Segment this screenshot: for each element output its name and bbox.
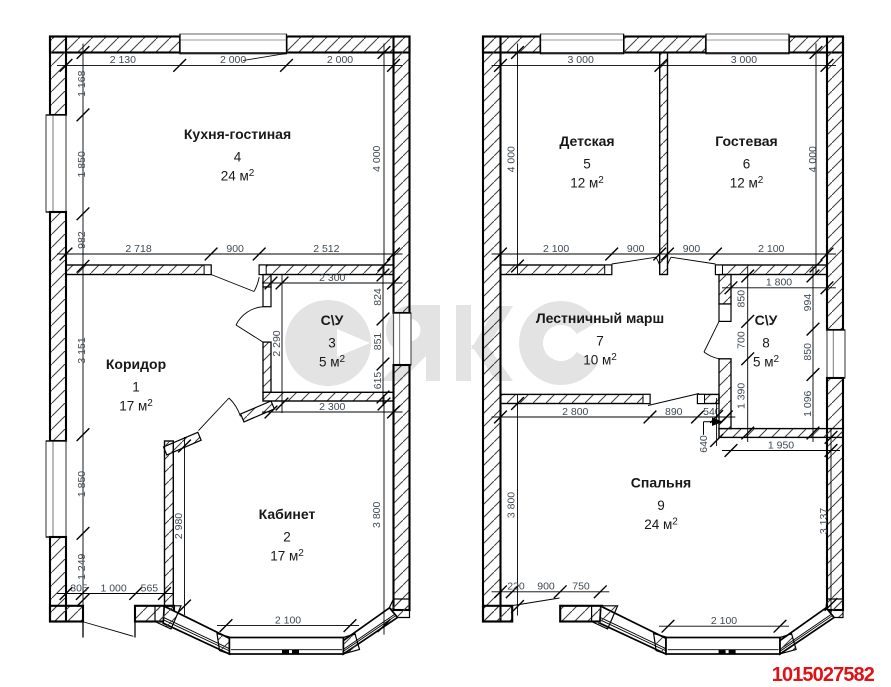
svg-text:824: 824 xyxy=(372,288,384,306)
svg-text:2 100: 2 100 xyxy=(758,243,784,255)
svg-text:Гостевая: Гостевая xyxy=(715,133,777,149)
svg-text:540: 540 xyxy=(703,406,721,418)
svg-text:Спальня: Спальня xyxy=(631,475,691,491)
svg-text:2 980: 2 980 xyxy=(173,513,185,539)
svg-text:1 249: 1 249 xyxy=(76,553,88,579)
svg-text:1015027582: 1015027582 xyxy=(772,664,875,686)
svg-text:1 390: 1 390 xyxy=(736,383,748,409)
svg-text:305: 305 xyxy=(70,582,88,594)
svg-text:3 137: 3 137 xyxy=(818,508,830,534)
svg-text:С\У: С\У xyxy=(321,312,344,328)
svg-text:700: 700 xyxy=(736,331,748,349)
svg-text:4 000: 4 000 xyxy=(506,146,518,172)
svg-text:220: 220 xyxy=(507,581,525,593)
svg-text:2 100: 2 100 xyxy=(711,615,737,627)
svg-text:2 718: 2 718 xyxy=(125,243,151,255)
svg-text:1 168: 1 168 xyxy=(76,70,88,96)
svg-text:890: 890 xyxy=(665,406,683,418)
svg-text:1 800: 1 800 xyxy=(766,277,792,289)
svg-text:8: 8 xyxy=(762,336,770,351)
svg-text:1: 1 xyxy=(132,380,140,395)
svg-text:4 000: 4 000 xyxy=(371,145,383,171)
svg-text:4: 4 xyxy=(234,150,242,165)
svg-text:2 300: 2 300 xyxy=(319,272,345,284)
svg-text:850: 850 xyxy=(802,343,814,361)
svg-text:7: 7 xyxy=(596,334,604,349)
svg-text:1 850: 1 850 xyxy=(76,151,88,177)
svg-text:982: 982 xyxy=(76,231,88,249)
svg-text:2 000: 2 000 xyxy=(220,54,246,66)
svg-text:5: 5 xyxy=(583,157,591,172)
svg-text:Коридор: Коридор xyxy=(106,356,166,372)
svg-text:2 800: 2 800 xyxy=(562,406,588,418)
svg-text:2 100: 2 100 xyxy=(275,614,301,626)
svg-text:900: 900 xyxy=(226,243,244,255)
svg-text:565: 565 xyxy=(141,582,159,594)
svg-text:2 300: 2 300 xyxy=(319,401,345,413)
svg-text:1 950: 1 950 xyxy=(768,439,794,451)
svg-text:9: 9 xyxy=(657,498,665,513)
svg-text:2 290: 2 290 xyxy=(271,330,283,356)
svg-text:900: 900 xyxy=(537,581,555,593)
svg-text:851: 851 xyxy=(372,333,384,351)
svg-text:3 000: 3 000 xyxy=(731,54,757,66)
svg-text:6: 6 xyxy=(743,157,751,172)
svg-text:3 151: 3 151 xyxy=(76,337,88,363)
svg-text:640: 640 xyxy=(698,435,710,453)
svg-text:Лестничный марш: Лестничный марш xyxy=(536,310,664,326)
svg-text:1 850: 1 850 xyxy=(76,471,88,497)
svg-text:994: 994 xyxy=(802,294,814,312)
svg-text:2: 2 xyxy=(283,530,291,545)
svg-text:1 000: 1 000 xyxy=(100,582,126,594)
svg-text:3 800: 3 800 xyxy=(371,502,383,528)
svg-text:900: 900 xyxy=(683,243,701,255)
svg-text:Кабинет: Кабинет xyxy=(259,506,316,522)
svg-text:2 130: 2 130 xyxy=(110,54,136,66)
svg-text:615: 615 xyxy=(372,372,384,390)
svg-text:2 512: 2 512 xyxy=(313,243,339,255)
svg-text:900: 900 xyxy=(627,243,645,255)
svg-text:3 800: 3 800 xyxy=(506,492,518,518)
svg-text:Детская: Детская xyxy=(559,133,614,149)
svg-text:2 100: 2 100 xyxy=(543,243,569,255)
svg-text:Кухня-гостиная: Кухня-гостиная xyxy=(184,126,291,142)
svg-text:850: 850 xyxy=(736,290,748,308)
svg-text:4 000: 4 000 xyxy=(807,146,819,172)
svg-text:750: 750 xyxy=(572,581,590,593)
svg-text:С\У: С\У xyxy=(755,312,778,328)
svg-text:3: 3 xyxy=(328,336,336,351)
svg-text:1 096: 1 096 xyxy=(802,390,814,416)
svg-text:2 000: 2 000 xyxy=(327,54,353,66)
svg-text:3 000: 3 000 xyxy=(568,54,594,66)
